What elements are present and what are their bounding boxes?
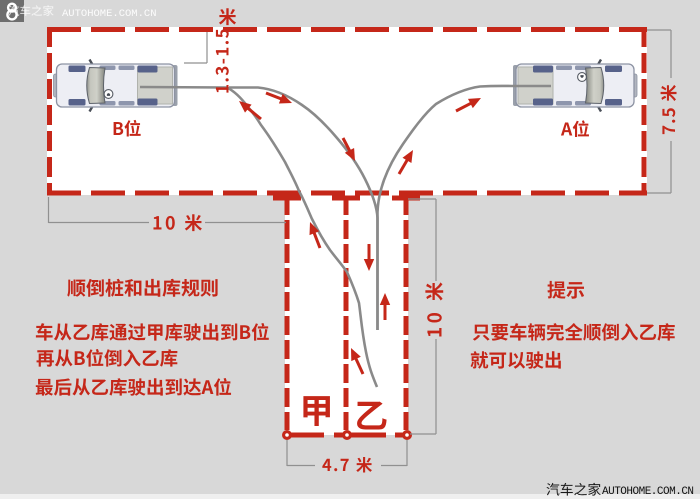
svg-text:AUTOHOME.COM.CN: AUTOHOME.COM.CN: [62, 8, 157, 20]
svg-text:AUTOHOME.COM.CN: AUTOHOME.COM.CN: [602, 486, 694, 498]
